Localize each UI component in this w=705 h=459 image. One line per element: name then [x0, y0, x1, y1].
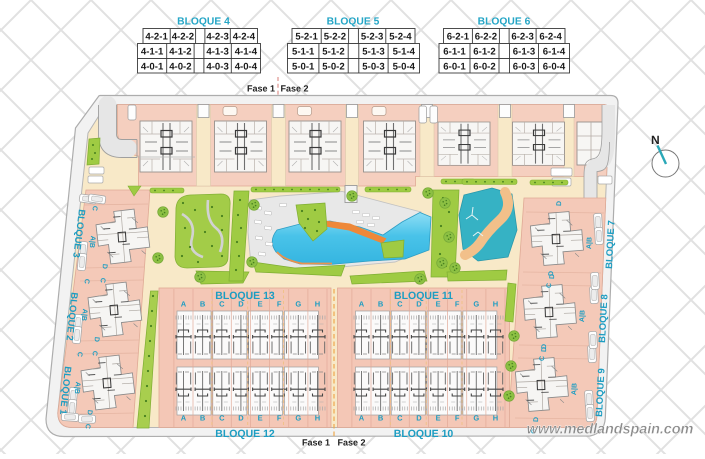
svg-text:4-0-2: 4-0-2 — [169, 61, 191, 72]
svg-text:H: H — [493, 414, 498, 423]
svg-text:D: D — [416, 414, 422, 423]
svg-text:A|B: A|B — [88, 235, 97, 248]
svg-text:C: C — [75, 351, 82, 357]
svg-text:E: E — [436, 414, 441, 423]
svg-text:4-2-2: 4-2-2 — [172, 32, 194, 43]
svg-text:D: D — [92, 336, 99, 342]
svg-text:5-2-1: 5-2-1 — [295, 32, 318, 43]
svg-text:B: B — [378, 300, 384, 309]
svg-text:C: C — [83, 423, 90, 429]
svg-text:A|B: A|B — [578, 310, 587, 322]
svg-text:A|B: A|B — [570, 383, 579, 395]
svg-text:D: D — [556, 201, 563, 206]
svg-text:C: C — [546, 283, 553, 288]
svg-text:BLOQUE 4: BLOQUE 4 — [177, 17, 230, 28]
svg-text:BLOQUE 12: BLOQUE 12 — [215, 428, 275, 440]
svg-text:5-0-1: 5-0-1 — [292, 61, 315, 72]
svg-text:F: F — [277, 300, 282, 309]
svg-text:A: A — [181, 414, 187, 423]
svg-text:BLOQUE 10: BLOQUE 10 — [394, 428, 454, 440]
svg-text:C: C — [98, 277, 105, 283]
svg-text:5-1-1: 5-1-1 — [292, 47, 315, 58]
svg-text:5-0-4: 5-0-4 — [393, 61, 416, 72]
svg-text:G: G — [473, 414, 479, 423]
svg-text:4-0-4: 4-0-4 — [235, 61, 258, 72]
svg-text:5-2-3: 5-2-3 — [361, 32, 383, 43]
svg-text:6-0-2: 6-0-2 — [473, 61, 495, 72]
svg-text:D: D — [549, 274, 556, 279]
svg-text:6-2-4: 6-2-4 — [539, 32, 562, 43]
svg-text:6-0-1: 6-0-1 — [443, 61, 466, 72]
svg-text:BLOQUE 13: BLOQUE 13 — [215, 290, 275, 302]
svg-text:A: A — [181, 300, 187, 309]
svg-text:5-0-3: 5-0-3 — [362, 61, 384, 72]
svg-text:A: A — [359, 300, 365, 309]
svg-text:C: C — [82, 278, 89, 284]
svg-text:A|B: A|B — [80, 308, 89, 321]
svg-text:C: C — [397, 414, 403, 423]
svg-text:6-2-3: 6-2-3 — [511, 32, 533, 43]
svg-text:D: D — [85, 409, 92, 415]
svg-text:6-1-4: 6-1-4 — [543, 47, 566, 58]
svg-text:4-1-2: 4-1-2 — [169, 47, 191, 58]
svg-text:5-1-4: 5-1-4 — [393, 47, 416, 58]
svg-text:4-1-1: 4-1-1 — [141, 47, 164, 58]
svg-text:4-2-1: 4-2-1 — [145, 32, 168, 43]
svg-text:G: G — [295, 414, 301, 423]
svg-text:BLOQUE 6: BLOQUE 6 — [478, 17, 531, 28]
svg-text:5-2-2: 5-2-2 — [324, 32, 346, 43]
svg-text:G: G — [295, 300, 301, 309]
svg-text:G: G — [473, 300, 479, 309]
svg-text:4-2-3: 4-2-3 — [206, 32, 228, 43]
svg-text:4-0-1: 4-0-1 — [141, 61, 164, 72]
svg-text:6-2-1: 6-2-1 — [447, 32, 470, 43]
svg-text:6-0-4: 6-0-4 — [543, 61, 566, 72]
svg-text:D: D — [541, 347, 548, 352]
svg-text:4-1-4: 4-1-4 — [235, 47, 258, 58]
svg-text:5-0-2: 5-0-2 — [322, 61, 344, 72]
svg-text:F: F — [455, 414, 460, 423]
svg-text:C: C — [90, 350, 97, 356]
svg-text:6-1-3: 6-1-3 — [513, 47, 535, 58]
svg-text:BLOQUE 5: BLOQUE 5 — [327, 17, 380, 28]
svg-text:C: C — [539, 356, 546, 361]
svg-text:H: H — [493, 300, 498, 309]
svg-text:A: A — [359, 414, 365, 423]
svg-text:5-1-3: 5-1-3 — [362, 47, 384, 58]
svg-text:6-2-2: 6-2-2 — [475, 32, 497, 43]
svg-text:6-0-3: 6-0-3 — [513, 61, 535, 72]
svg-text:6-1-1: 6-1-1 — [443, 47, 466, 58]
svg-text:B: B — [200, 300, 206, 309]
svg-text:5-2-4: 5-2-4 — [389, 32, 412, 43]
svg-text:F: F — [277, 414, 282, 423]
svg-text:5-1-2: 5-1-2 — [322, 47, 344, 58]
svg-text:Fase 2: Fase 2 — [338, 437, 366, 447]
svg-text:Fase 2: Fase 2 — [281, 84, 309, 94]
svg-text:Fase 1: Fase 1 — [247, 84, 275, 94]
svg-text:N: N — [651, 133, 660, 147]
svg-text:F: F — [455, 300, 460, 309]
svg-text:E: E — [258, 414, 263, 423]
svg-text:4-1-3: 4-1-3 — [206, 47, 228, 58]
svg-text:D: D — [100, 263, 107, 269]
svg-text:4-0-3: 4-0-3 — [206, 61, 228, 72]
svg-text:A|B: A|B — [585, 237, 594, 249]
svg-text:B: B — [378, 414, 384, 423]
svg-text:4-2-4: 4-2-4 — [233, 32, 256, 43]
svg-text:C: C — [219, 414, 225, 423]
svg-text:C: C — [90, 205, 97, 211]
svg-text:H: H — [315, 300, 320, 309]
svg-text:Fase 1: Fase 1 — [302, 437, 330, 447]
svg-text:www.medlandspain.com: www.medlandspain.com — [527, 422, 694, 438]
svg-text:B: B — [200, 414, 206, 423]
svg-text:A|B: A|B — [73, 381, 82, 394]
svg-text:6-1-2: 6-1-2 — [473, 47, 495, 58]
svg-text:BLOQUE 11: BLOQUE 11 — [394, 290, 453, 302]
svg-text:H: H — [315, 414, 320, 423]
svg-text:D: D — [238, 414, 244, 423]
